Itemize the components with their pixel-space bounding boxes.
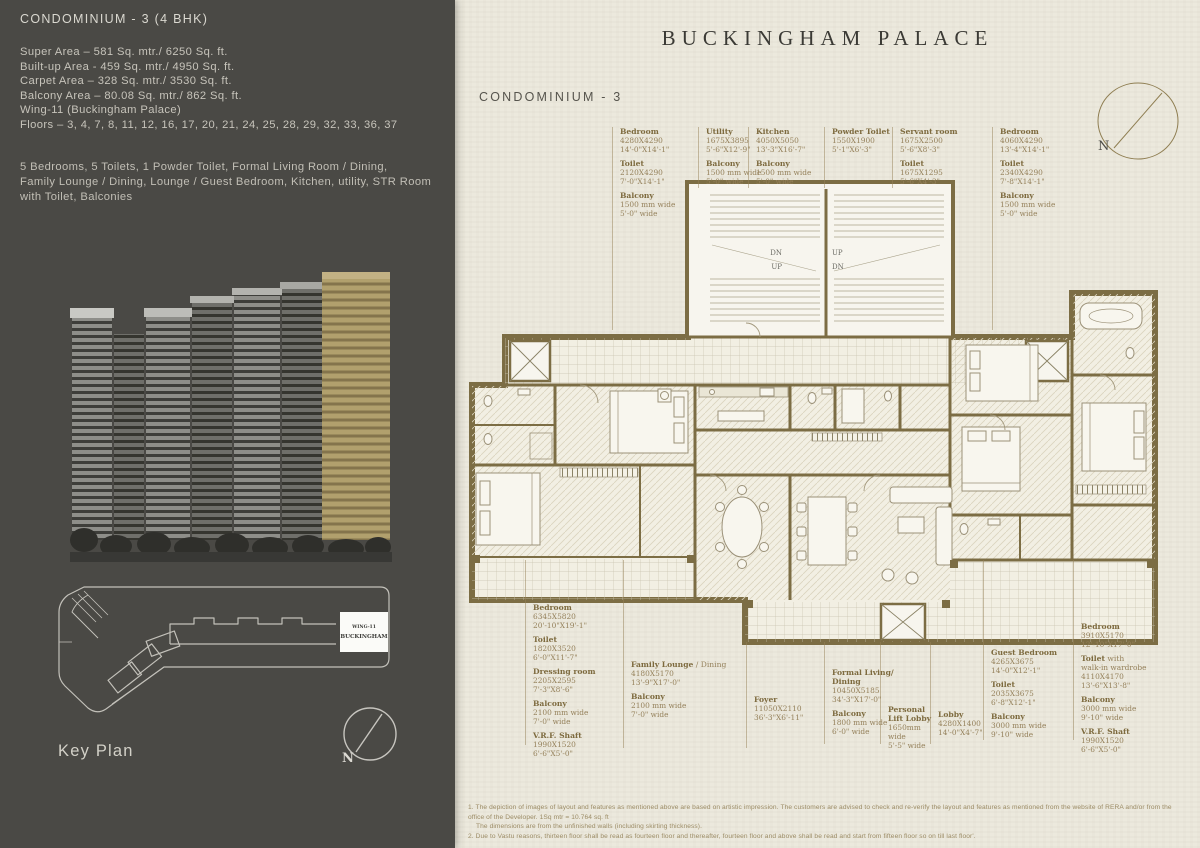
key-plan-caption: Key Plan	[58, 742, 134, 761]
room-dimension: 5'-1"X6'-3"	[832, 145, 908, 154]
room-dimension: 6345X5820	[533, 612, 611, 621]
unit-description: 5 Bedrooms, 5 Toilets, 1 Powder Toilet, …	[20, 160, 455, 204]
room-name: Powder Toilet	[832, 127, 908, 136]
room-name: Balcony	[1081, 695, 1165, 704]
room-dimension: 6'-8"X12'-1"	[991, 698, 1071, 707]
room-dimension: 9'-10" wide	[1081, 713, 1165, 722]
area-specs: Super Area – 581 Sq. mtr./ 6250 Sq. ft. …	[20, 45, 397, 133]
room-name: Dressing room	[533, 667, 611, 676]
room-name: Toilet with	[1081, 654, 1165, 663]
room-dimension: 7'-3"X8'-6"	[533, 685, 611, 694]
room-name: Balcony	[1000, 191, 1078, 200]
room-dimension: 5'-6"X8'-3"	[900, 145, 976, 154]
label-leader-line	[525, 560, 526, 745]
room-name: Servant room	[900, 127, 976, 136]
room-label-column: Bedroom4060X429013'-4"X14'-1"Toilet2340X…	[1000, 127, 1078, 223]
room-name: Toilet	[991, 680, 1071, 689]
room-dimension: 10450X5185	[832, 686, 922, 695]
room-name: Toilet	[620, 159, 696, 168]
room-dimension: 3000 mm wide	[1081, 704, 1165, 713]
room-name: Personal Lift Lobby	[888, 705, 934, 723]
stair-label-up-right: UP	[832, 249, 843, 257]
room-name: Guest Bedroom	[991, 648, 1071, 657]
room-dimension: 2100 mm wide	[631, 701, 727, 710]
room-dimension: 34'-3"X17'-0"	[832, 695, 922, 704]
room-dimension: 14'-0"X14'-1"	[620, 145, 696, 154]
bed-top-right-bedroom	[966, 345, 1038, 401]
bathtub	[1080, 303, 1142, 329]
wardrobe-left	[560, 468, 638, 477]
wardrobe-right	[1076, 485, 1146, 494]
room-dimension: 13'-9"X17'-0"	[631, 678, 727, 687]
footnote-1: 1. The depiction of images of layout and…	[468, 803, 1188, 822]
plan-compass-icon: N	[1088, 76, 1188, 166]
room-dimension: 4110X4170	[1081, 672, 1165, 681]
key-plan-north-label: N	[342, 751, 354, 766]
room-dimension: 1990X1520	[1081, 736, 1165, 745]
floor-plan-drawing: DN UP UP DN	[460, 175, 1160, 650]
key-plan-wing-number: WING-11	[351, 624, 376, 630]
label-leader-line	[824, 642, 825, 744]
room-name: Bedroom	[533, 603, 611, 612]
servant-wc	[885, 391, 892, 401]
stair-label-up-left: UP	[771, 263, 782, 271]
footnote-2: 2. Due to Vastu reasons, thirteen floor …	[468, 832, 1188, 842]
spec-carpet-area: Carpet Area – 328 Sq. mtr./ 3530 Sq. ft.	[20, 74, 397, 89]
servant-bed	[842, 389, 864, 423]
bed-master-bedroom	[476, 473, 540, 545]
footnote-1b: The dimensions are from the unfinished w…	[468, 822, 1188, 832]
room-name: Balcony	[756, 159, 832, 168]
room-dimension: 7'-0"X14'-1"	[620, 177, 696, 186]
room-dimension: 4265X3675	[991, 657, 1071, 666]
room-label-column: Guest Bedroom4265X367514'-0"X12'-1"Toile…	[991, 648, 1071, 744]
label-leader-line	[892, 127, 893, 188]
room-dimension: 13'-6"X13'-8"	[1081, 681, 1165, 690]
room-dimension: 14'-0"X12'-1"	[991, 666, 1071, 675]
label-leader-line	[992, 127, 993, 330]
room-name: Bedroom	[620, 127, 696, 136]
label-leader-line	[748, 127, 749, 188]
room-name: Family Lounge / Dining	[631, 660, 727, 669]
room-name: Bedroom	[1081, 622, 1165, 631]
room-dimension: 5'-0" wide	[620, 209, 696, 218]
room-name: Balcony	[533, 699, 611, 708]
room-dimension: 2120X4290	[620, 168, 696, 177]
room-name: Foyer	[754, 695, 834, 704]
room-dimension: 6'-0"X11'-7"	[533, 653, 611, 662]
room-dimension: 7'-0" wide	[533, 717, 611, 726]
unit-description-line1: 5 Bedrooms, 5 Toilets, 1 Powder Toilet, …	[20, 160, 455, 175]
unit-description-line2: Family Lounge / Dining, Lounge / Guest B…	[20, 175, 455, 205]
room-label-column: Servant room1675X25005'-6"X8'-3"Toilet16…	[900, 127, 976, 191]
floor-finishes	[472, 184, 1155, 642]
room-dimension: 2035X3675	[991, 689, 1071, 698]
room-dimension: 13'-3"X16'-7"	[756, 145, 832, 154]
room-label-column: Bedroom6345X582020'-10"X19'-1"Toilet1820…	[533, 603, 611, 763]
room-name: Formal Living/ Dining	[832, 668, 922, 686]
label-leader-line	[880, 642, 881, 744]
building-photo-art	[70, 256, 392, 562]
room-name: Toilet	[533, 635, 611, 644]
footnotes: 1. The depiction of images of layout and…	[468, 803, 1188, 841]
room-label-column: Personal Lift Lobby1650mm wide5'-5" wide	[888, 705, 934, 755]
room-label-column: Foyer11050X211036'-3"X6'-11"	[754, 695, 834, 727]
room-name: Balcony	[631, 692, 727, 701]
room-dimension: 2100 mm wide	[533, 708, 611, 717]
room-label-column: Kitchen4050X505013'-3"X16'-7"Balcony1500…	[756, 127, 832, 191]
spec-balcony-area: Balcony Area – 80.08 Sq. mtr./ 862 Sq. f…	[20, 89, 397, 104]
room-dimension: 1500 mm wide	[620, 200, 696, 209]
room-dimension: 2205X2595	[533, 676, 611, 685]
room-dimension: 6'-6"X5'-0"	[533, 749, 611, 758]
room-dimension: 7'-8"X14'-1"	[1000, 177, 1078, 186]
room-name: Bedroom	[1000, 127, 1078, 136]
room-name: Toilet	[900, 159, 976, 168]
room-dimension: 1550X1900	[832, 136, 908, 145]
floor-plan-svg: DN UP UP DN	[460, 175, 1160, 650]
room-label-column: Family Lounge / Dining4180X517013'-9"X17…	[631, 660, 727, 724]
room-name: Toilet	[1000, 159, 1078, 168]
label-leader-line	[983, 560, 984, 740]
label-leader-line	[930, 642, 931, 744]
room-dimension: 7'-0" wide	[631, 710, 727, 719]
label-leader-line	[623, 560, 624, 748]
right-toilet-wc	[1126, 348, 1134, 359]
spec-super-area: Super Area – 581 Sq. mtr./ 6250 Sq. ft.	[20, 45, 397, 60]
project-title: BUCKINGHAM PALACE	[455, 26, 1200, 51]
room-dimension: 2340X4290	[1000, 168, 1078, 177]
room-name: V.R.F. Shaft	[533, 731, 611, 740]
room-label-column: Bedroom4280X429014'-0"X14'-1"Toilet2120X…	[620, 127, 696, 223]
room-dimension: 1500 mm wide	[1000, 200, 1078, 209]
key-plan-compass-icon: N	[330, 700, 402, 772]
bed-left-bedroom	[610, 391, 688, 453]
room-dimension: 1500 mm wide	[756, 168, 832, 177]
label-leader-line	[612, 127, 613, 330]
label-leader-line	[824, 127, 825, 188]
room-dimension: 12'-10"X17'-0"	[1081, 640, 1165, 649]
stair-label-dn-right: DN	[832, 263, 844, 271]
spec-floors: Floors – 3, 4, 7, 8, 11, 12, 16, 17, 20,…	[20, 118, 397, 133]
room-dimension: 20'-10"X19'-1"	[533, 621, 611, 630]
room-dimension: 4180X5170	[631, 669, 727, 678]
room-dimension: 4060X4290	[1000, 136, 1078, 145]
label-leader-line	[746, 642, 747, 748]
room-name: Balcony	[991, 712, 1071, 721]
formal-dining-table	[797, 497, 857, 565]
room-dimension: 5'-0" wide	[1000, 209, 1078, 218]
room-name: V.R.F. Shaft	[1081, 727, 1165, 736]
bed-far-right-bedroom	[1082, 403, 1146, 471]
room-label-column: Powder Toilet1550X19005'-1"X6'-3"	[832, 127, 908, 159]
label-leader-line	[1073, 560, 1074, 740]
room-dimension: 3000 mm wide	[991, 721, 1071, 730]
foyer-console	[812, 433, 882, 441]
room-dimension: 1820X3520	[533, 644, 611, 653]
spec-wing: Wing-11 (Buckingham Palace)	[20, 103, 397, 118]
room-dimension: 6'-6"X5'-0"	[1081, 745, 1165, 754]
room-dimension: 5'-5" wide	[888, 741, 934, 750]
room-dimension: 13'-4"X14'-1"	[1000, 145, 1078, 154]
room-dimension: 9'-10" wide	[991, 730, 1071, 739]
room-dimension: 3910X5170	[1081, 631, 1165, 640]
spec-builtup-area: Built-up Area - 459 Sq. mtr./ 4950 Sq. f…	[20, 60, 397, 75]
condominium-subtitle: CONDOMINIUM - 3	[479, 90, 622, 104]
room-dimension: 1990X1520	[533, 740, 611, 749]
left-info-panel: CONDOMINIUM - 3 (4 BHK) Super Area – 581…	[0, 0, 455, 848]
room-dimension: 4050X5050	[756, 136, 832, 145]
room-dimension: 1675X1295	[900, 168, 976, 177]
condominium-heading: CONDOMINIUM - 3 (4 BHK)	[20, 12, 208, 26]
key-plan-art: WING-11 BUCKINGHAM	[52, 582, 398, 714]
room-name: Balcony	[620, 191, 696, 200]
utility-washer	[658, 389, 671, 402]
brochure-page: CONDOMINIUM - 3 (4 BHK) Super Area – 581…	[0, 0, 1200, 848]
room-label-column: Bedroom3910X517012'-10"X17'-0"Toilet wit…	[1081, 622, 1165, 759]
room-dimension: 1675X2500	[900, 136, 976, 145]
stair-label-dn-left: DN	[770, 249, 782, 257]
building-photo	[70, 256, 392, 562]
room-dimension: 1650mm wide	[888, 723, 934, 741]
room-dimension: walk-in wardrobe	[1081, 663, 1165, 672]
room-name: Kitchen	[756, 127, 832, 136]
room-dimension: 4280X4290	[620, 136, 696, 145]
room-dimension: 11050X2110	[754, 704, 834, 713]
wing-11-highlight	[340, 612, 388, 652]
balcony-left	[472, 559, 695, 600]
room-dimension: 5'-0" wide	[756, 177, 832, 186]
room-dimension: 5'-6"X4'-3"	[900, 177, 976, 186]
room-dimension: 36'-3"X6'-11"	[754, 713, 834, 722]
plan-north-label: N	[1098, 139, 1109, 154]
label-leader-line	[698, 127, 699, 188]
key-plan-wing-name: BUCKINGHAM	[340, 634, 387, 640]
key-plan: WING-11 BUCKINGHAM	[52, 582, 398, 714]
bed-guest-bedroom	[962, 427, 1020, 491]
